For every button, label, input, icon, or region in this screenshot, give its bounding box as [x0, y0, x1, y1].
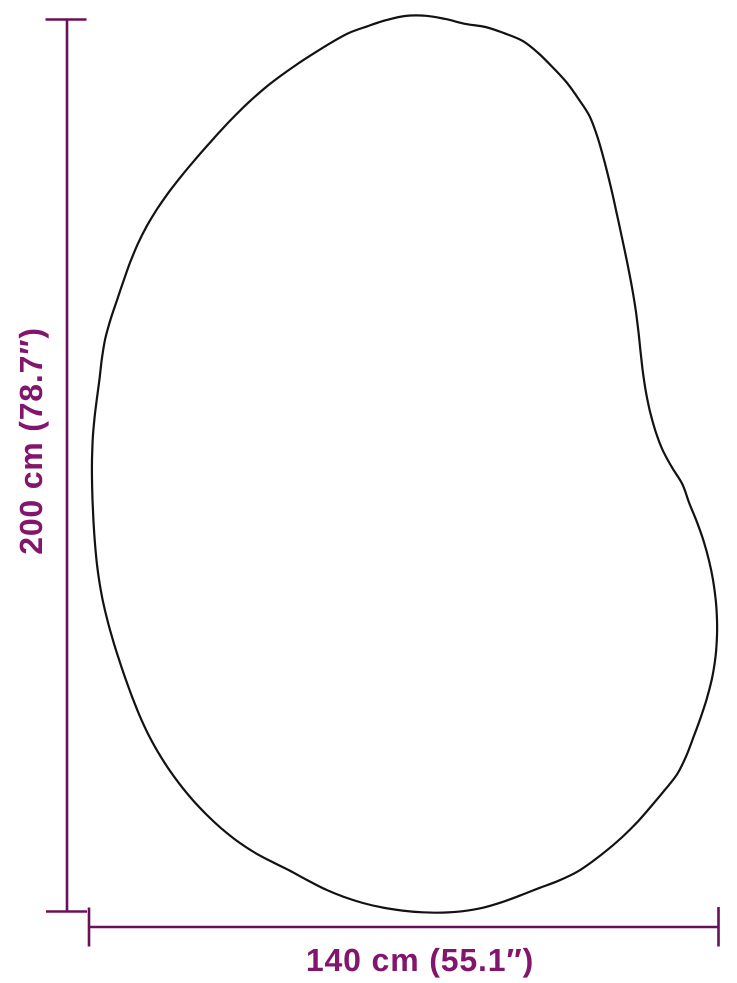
svg-text:140 cm (55.1″): 140 cm (55.1″) — [306, 942, 534, 978]
svg-text:200 cm (78.7″): 200 cm (78.7″) — [13, 327, 49, 555]
